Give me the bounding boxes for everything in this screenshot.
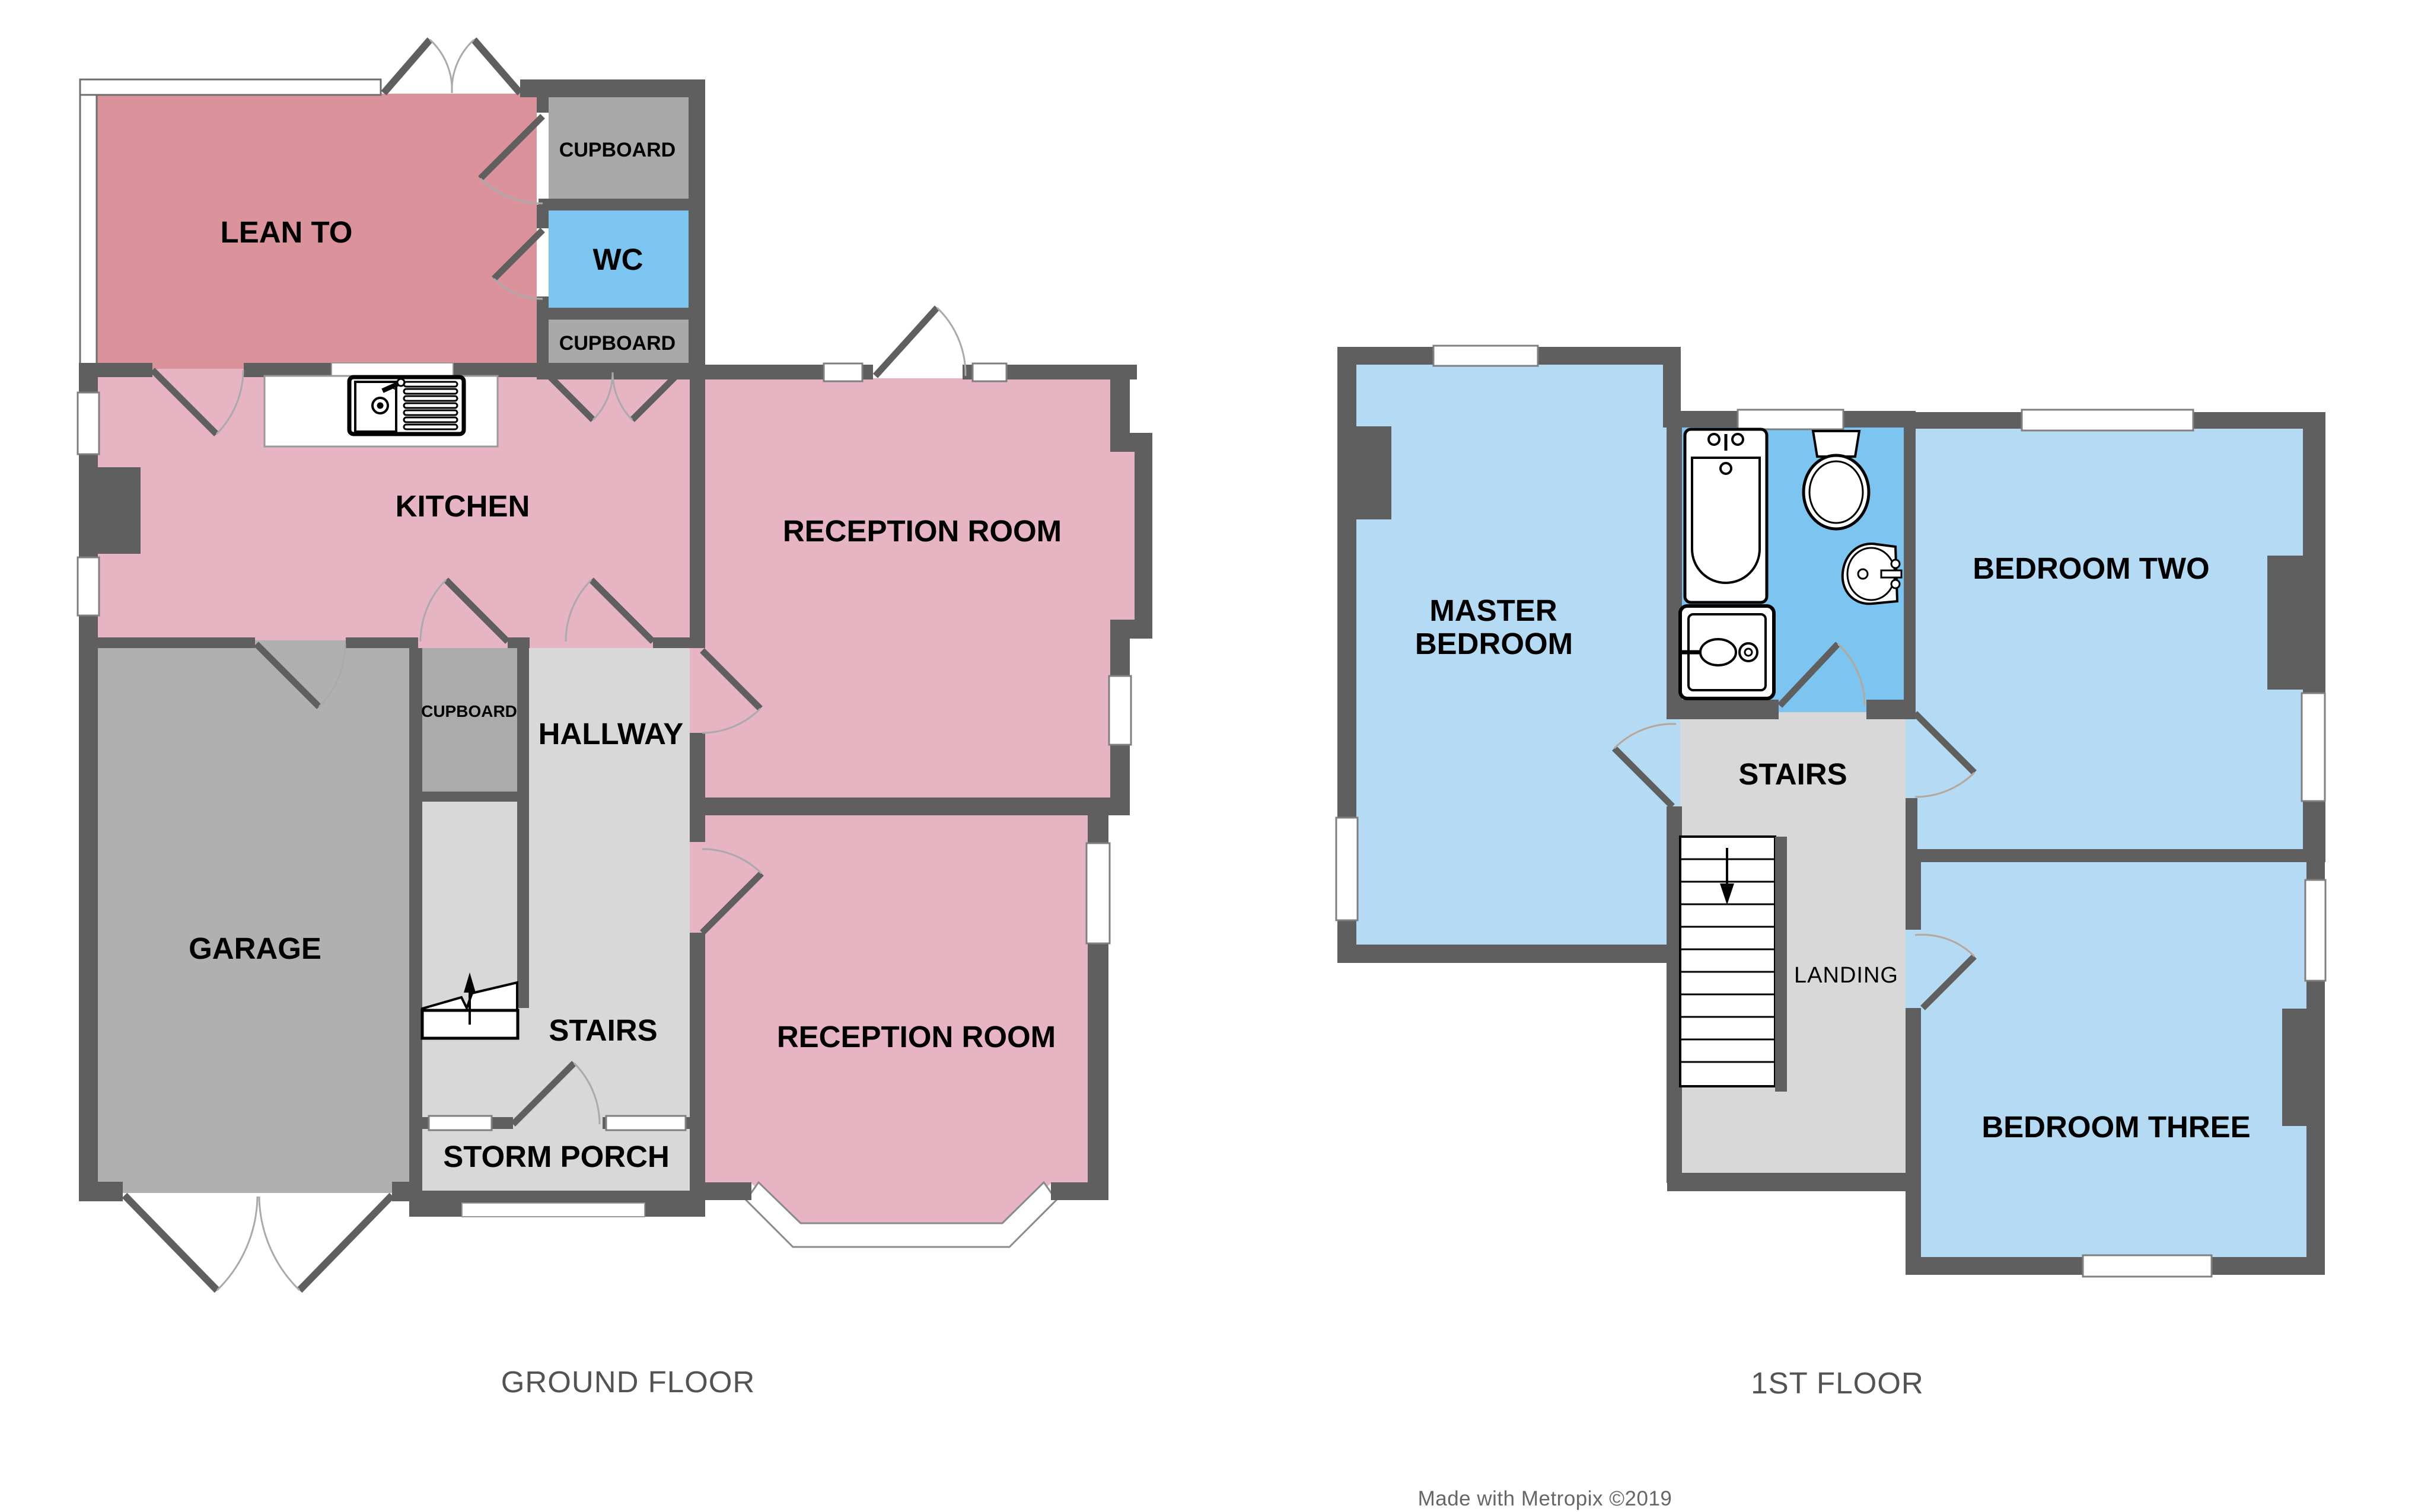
svg-text:STAIRS: STAIRS [1738, 757, 1847, 791]
svg-text:RECEPTION ROOM: RECEPTION ROOM [783, 514, 1062, 548]
svg-text:BEDROOM: BEDROOM [1415, 627, 1573, 661]
svg-text:LANDING: LANDING [1794, 963, 1898, 988]
svg-text:BEDROOM THREE: BEDROOM THREE [1981, 1110, 2250, 1144]
svg-text:GROUND FLOOR: GROUND FLOOR [501, 1365, 756, 1399]
svg-text:KITCHEN: KITCHEN [396, 489, 530, 523]
svg-text:GARAGE: GARAGE [189, 932, 321, 965]
svg-text:RECEPTION ROOM: RECEPTION ROOM [777, 1020, 1056, 1054]
svg-text:CUPBOARD: CUPBOARD [421, 702, 517, 720]
svg-text:BEDROOM TWO: BEDROOM TWO [1973, 551, 2209, 585]
svg-text:Made with Metropix ©2019: Made with Metropix ©2019 [1418, 1487, 1672, 1510]
svg-text:CUPBOARD: CUPBOARD [559, 332, 676, 355]
svg-text:STORM PORCH: STORM PORCH [443, 1140, 670, 1173]
svg-text:MASTER: MASTER [1429, 594, 1557, 627]
svg-text:CUPBOARD: CUPBOARD [559, 139, 676, 161]
svg-text:WC: WC [593, 243, 643, 276]
svg-text:LEAN TO: LEAN TO [221, 215, 353, 249]
svg-text:STAIRS: STAIRS [549, 1013, 657, 1047]
svg-text:1ST FLOOR: 1ST FLOOR [1751, 1366, 1923, 1400]
svg-text:HALLWAY: HALLWAY [539, 717, 684, 751]
